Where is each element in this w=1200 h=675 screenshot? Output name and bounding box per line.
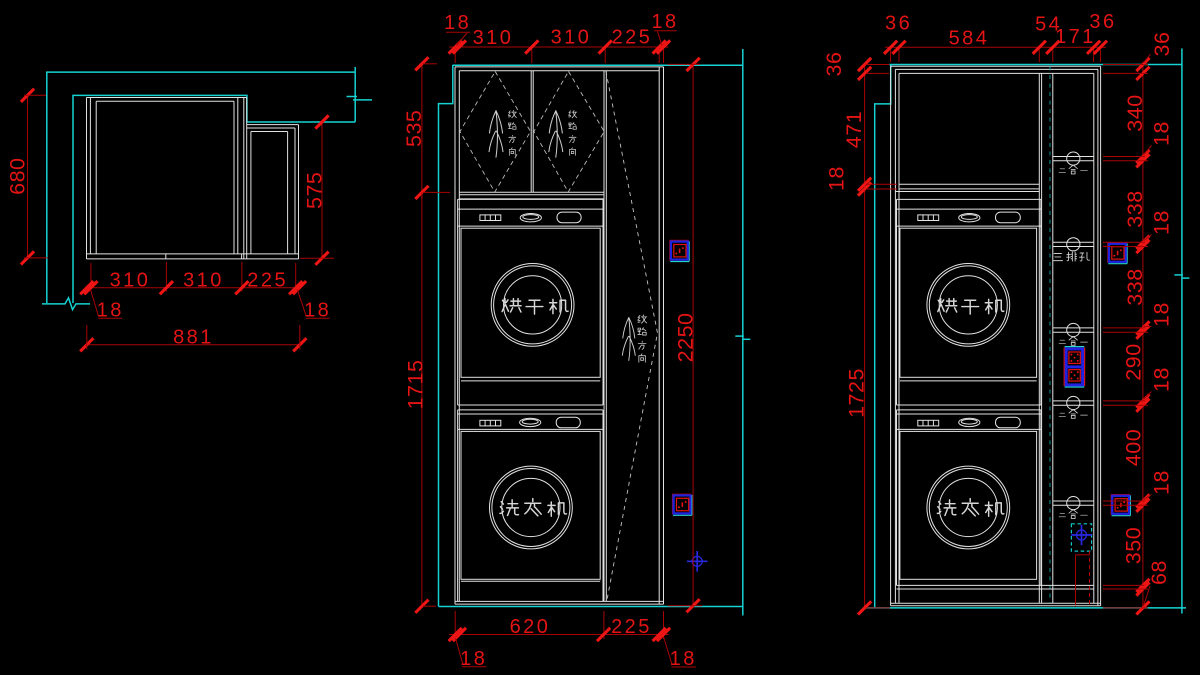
svg-text:18: 18	[1150, 210, 1174, 235]
svg-text:225: 225	[611, 616, 652, 638]
svg-text:400: 400	[1122, 429, 1146, 466]
svg-text:310: 310	[473, 27, 514, 49]
svg-text:18: 18	[651, 11, 678, 33]
svg-text:18: 18	[1150, 302, 1174, 327]
svg-text:18: 18	[460, 648, 487, 670]
svg-text:1715: 1715	[404, 360, 428, 410]
svg-text:18: 18	[1150, 121, 1174, 146]
svg-text:310: 310	[110, 270, 151, 292]
svg-text:18: 18	[1150, 470, 1174, 495]
svg-text:1725: 1725	[845, 368, 869, 418]
svg-text:310: 310	[183, 270, 224, 292]
svg-text:310: 310	[551, 26, 592, 48]
svg-text:18: 18	[670, 648, 697, 670]
svg-text:36: 36	[1089, 11, 1116, 33]
svg-text:340: 340	[1123, 94, 1147, 131]
svg-text:535: 535	[402, 110, 426, 147]
svg-text:881: 881	[173, 327, 214, 349]
svg-text:2250: 2250	[673, 312, 697, 362]
svg-text:471: 471	[842, 111, 866, 148]
svg-text:18: 18	[444, 12, 471, 34]
svg-text:225: 225	[247, 270, 288, 292]
svg-text:225: 225	[612, 26, 653, 48]
svg-text:290: 290	[1122, 343, 1146, 380]
svg-text:18: 18	[97, 300, 124, 322]
svg-text:584: 584	[949, 28, 990, 50]
svg-text:680: 680	[6, 158, 30, 195]
svg-text:338: 338	[1123, 268, 1147, 305]
svg-text:350: 350	[1122, 527, 1146, 564]
svg-text:18: 18	[825, 166, 849, 191]
svg-text:18: 18	[304, 300, 331, 322]
svg-text:36: 36	[822, 52, 846, 77]
svg-text:338: 338	[1123, 190, 1147, 227]
svg-text:620: 620	[510, 616, 551, 638]
svg-text:36: 36	[1150, 32, 1174, 57]
svg-text:68: 68	[1147, 560, 1171, 585]
svg-text:36: 36	[885, 13, 912, 35]
svg-text:18: 18	[1150, 367, 1174, 392]
svg-text:575: 575	[302, 172, 326, 209]
